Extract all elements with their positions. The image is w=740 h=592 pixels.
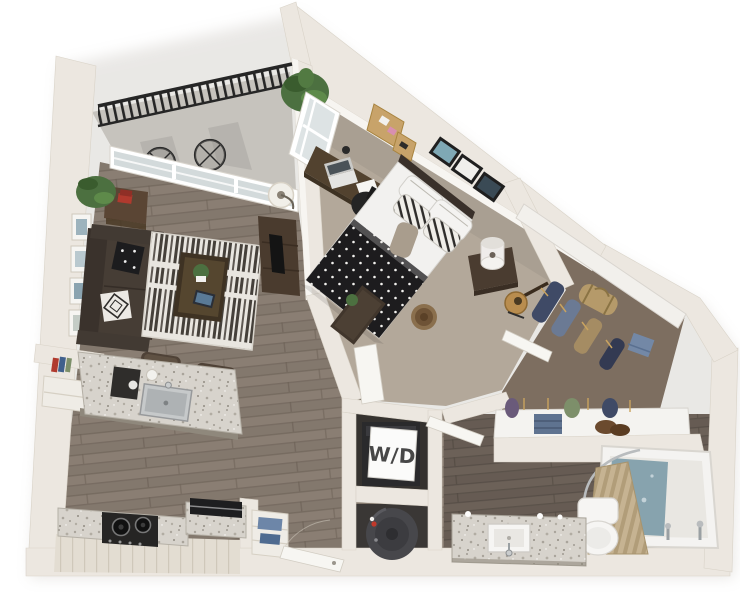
vanity bbox=[452, 511, 586, 566]
coffee-maker bbox=[110, 367, 140, 400]
laundry-closet: W/D bbox=[362, 422, 420, 486]
range-stove bbox=[102, 512, 158, 547]
table-lamp bbox=[481, 237, 504, 270]
floor-plan-3d-render: W/D bbox=[0, 0, 740, 592]
coffee-table bbox=[173, 252, 229, 322]
folded-jeans bbox=[534, 414, 562, 434]
wd-label: W/D bbox=[368, 441, 417, 468]
floor-plan-svg: W/D bbox=[0, 0, 740, 592]
wall-laundry-left bbox=[342, 412, 356, 550]
vanity-sink bbox=[488, 524, 530, 556]
wd-placard: W/D bbox=[368, 427, 417, 481]
throw-pillow-polka bbox=[111, 241, 144, 274]
water-heater bbox=[366, 508, 418, 560]
closet-bottom-shelf bbox=[494, 408, 690, 438]
tv-console bbox=[258, 216, 300, 296]
balcony-chair bbox=[195, 140, 225, 170]
throw-pillow-diamond bbox=[100, 290, 132, 322]
utility-closet bbox=[366, 508, 418, 560]
living-plant bbox=[76, 176, 116, 208]
bench-plant bbox=[346, 294, 358, 306]
island-bowl bbox=[147, 370, 158, 381]
round-basket bbox=[411, 304, 437, 330]
desk-phone bbox=[342, 146, 350, 154]
